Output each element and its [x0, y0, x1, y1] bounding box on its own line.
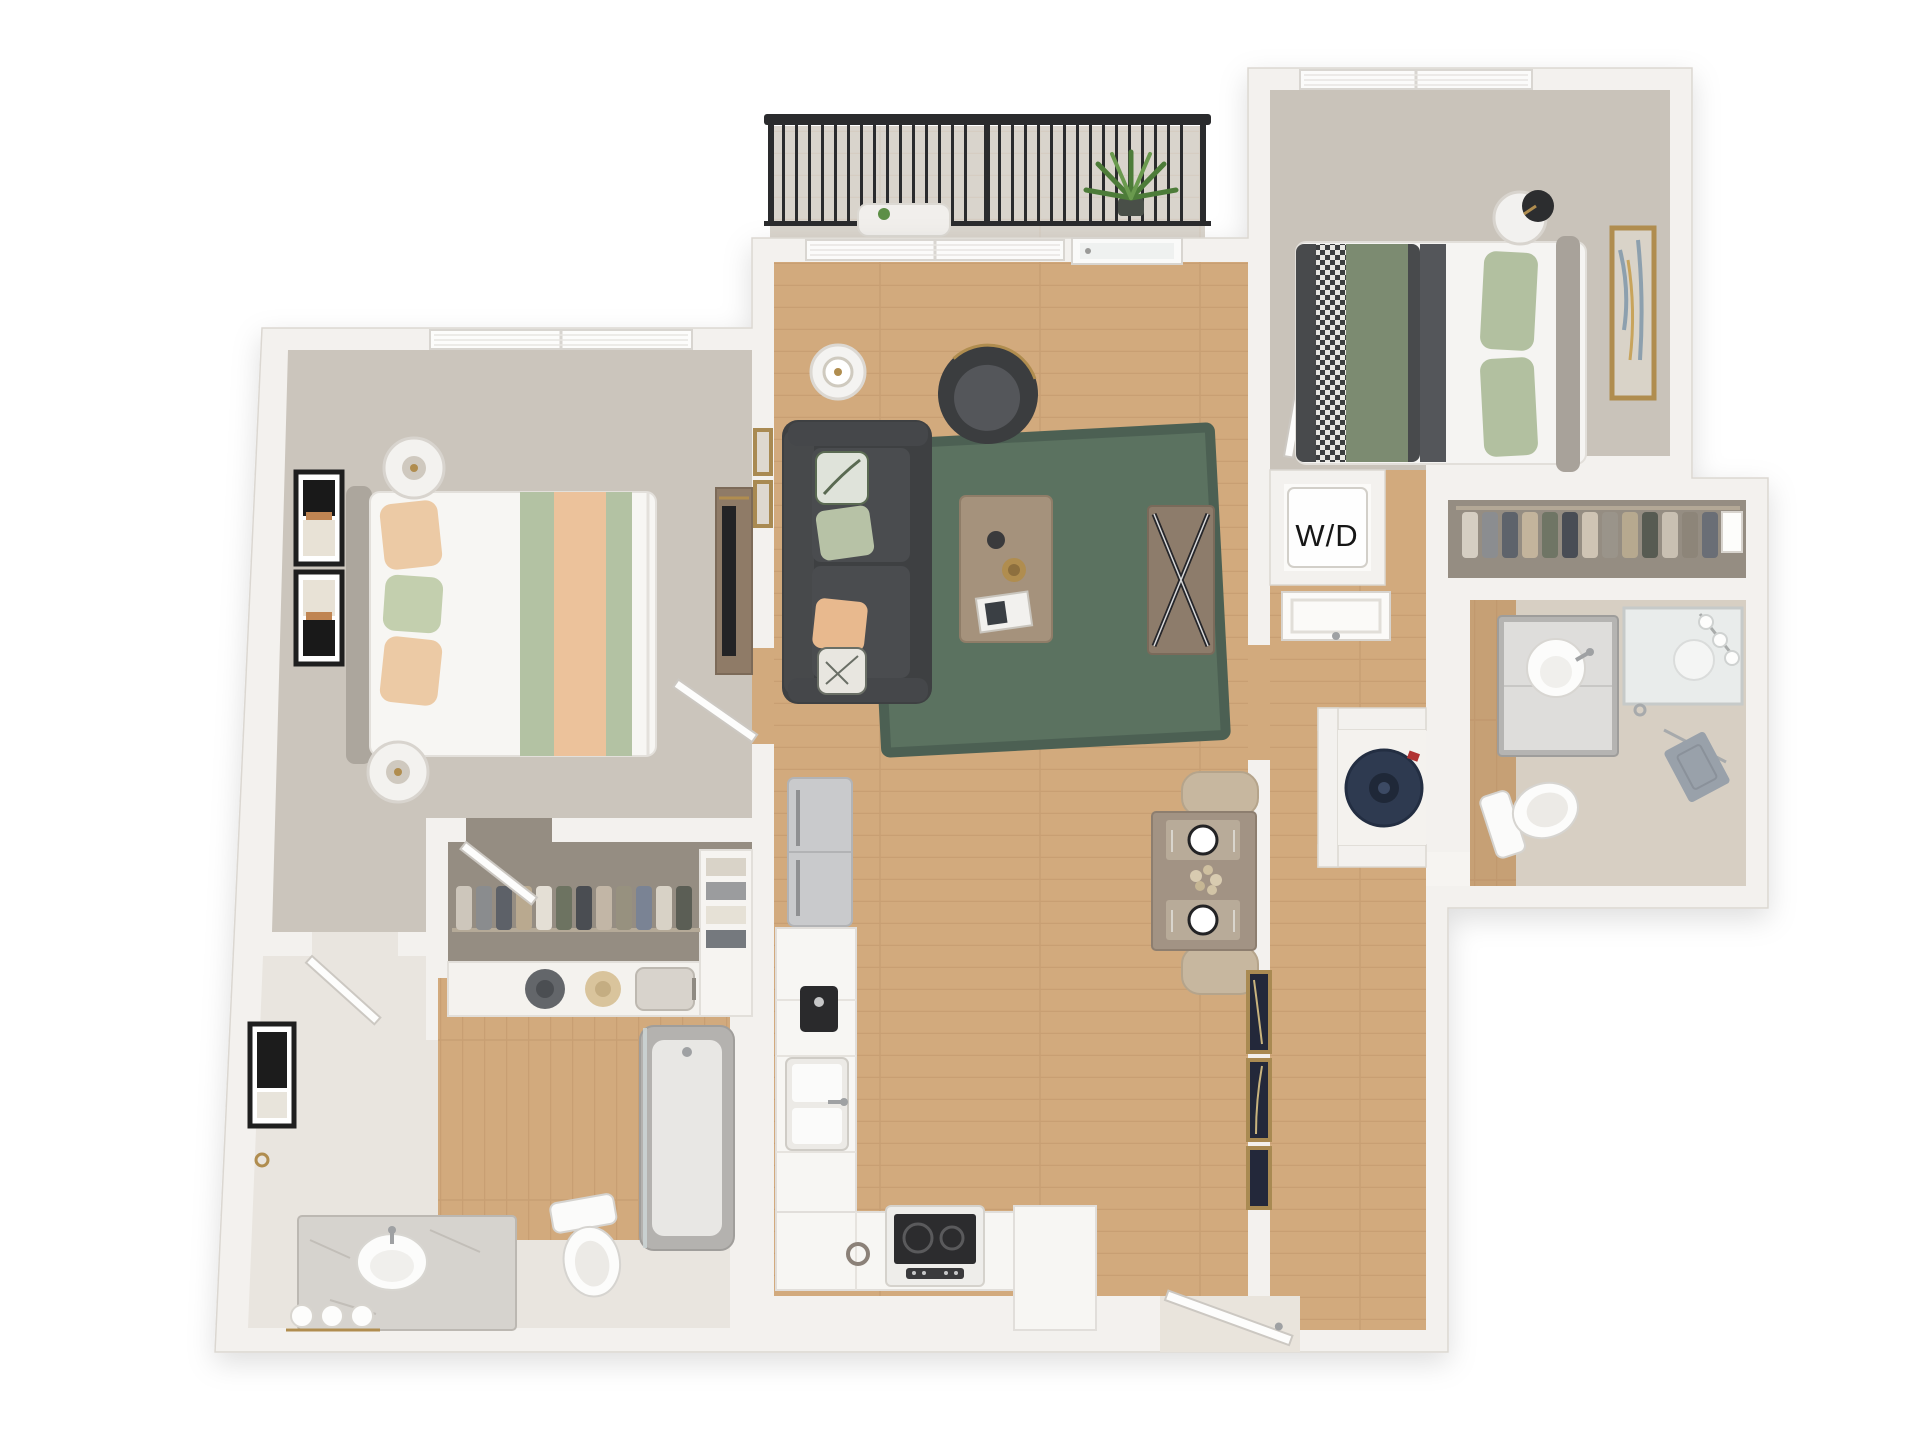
headboard: [1556, 236, 1580, 472]
balcony: [764, 114, 1211, 238]
green-pillow-1: [1479, 251, 1538, 352]
balcony-door: [1072, 238, 1182, 264]
green-blanket: [1346, 244, 1408, 462]
hall-nook-floor: [1385, 470, 1426, 585]
bedroom-2-window: [1300, 70, 1532, 89]
utility-closet: [1318, 708, 1426, 867]
bedroom-1-door-opening: [752, 648, 774, 744]
mirror: [1624, 608, 1742, 704]
storage-box: [1722, 512, 1742, 552]
counter-left: [776, 928, 856, 1216]
laundry-paneled-door: [1282, 592, 1390, 640]
washer-dryer-label: W/D: [1295, 518, 1358, 553]
runner-sage-stripe: [520, 492, 554, 756]
runner-peach-stripe: [554, 492, 606, 756]
refrigerator: [788, 778, 852, 926]
hall-wood-texture: [1270, 585, 1426, 1330]
coffee-maker-icon: [800, 986, 838, 1032]
plate-2: [1189, 906, 1217, 934]
sage-pillow: [815, 504, 875, 561]
tv-icon: [722, 506, 736, 656]
media-console: [1148, 506, 1214, 654]
bedroom-2-art: [1612, 228, 1654, 398]
runner-sage-stripe-2: [606, 492, 632, 756]
closet-shelf: [448, 962, 700, 1016]
peach-pillow: [812, 597, 869, 652]
dining-chair-1: [1182, 772, 1258, 816]
suitcase: [636, 968, 694, 1010]
plate-1: [1189, 826, 1217, 854]
peach-pillow: [379, 499, 444, 571]
living-room-window: [806, 240, 1064, 260]
reflected-basin: [1674, 640, 1714, 680]
water-heater-icon: [1346, 750, 1422, 826]
vanity-2: [1498, 616, 1618, 756]
headboard: [346, 486, 372, 764]
checkered-throw: [1316, 244, 1346, 462]
coffee-table: [960, 496, 1052, 642]
floor-plan-rendering: W/D: [0, 0, 1920, 1440]
sofa: [782, 420, 932, 704]
peninsula-cabinet: [1014, 1206, 1096, 1330]
dresser-with-tv: [716, 488, 752, 674]
gallery-frames: [1248, 972, 1270, 1208]
black-table-lamp: [1522, 190, 1554, 222]
tub-faucet: [682, 1047, 692, 1057]
bathtub-shower: [640, 1026, 734, 1250]
bed-2: [1296, 236, 1586, 472]
vase: [987, 531, 1005, 549]
side-table-with-lamp: [811, 345, 865, 399]
range-stove: [886, 1206, 984, 1286]
nightstand-lamp-1: [384, 438, 444, 498]
duvet-fold: [1420, 244, 1446, 462]
dining-table: [1152, 812, 1256, 950]
hall-opening: [1248, 645, 1270, 760]
bathroom-1-door-opening: [312, 932, 398, 956]
nightstand-lamp-2: [368, 742, 428, 802]
leaf-pattern-pillow: [816, 452, 868, 504]
green-pillow-2: [1479, 357, 1538, 458]
bed-1: [346, 486, 656, 764]
bedroom-1-window: [430, 330, 692, 349]
rolled-towels: [286, 1305, 380, 1330]
kitchen-sink: [786, 1058, 848, 1150]
sage-pillow: [382, 574, 444, 634]
laundry-closet: W/D: [1270, 470, 1390, 640]
peach-pillow-2: [379, 635, 444, 707]
entry-hall: [1248, 972, 1270, 1208]
patio-table: [858, 204, 950, 236]
bathroom-2-door-opening: [1426, 852, 1470, 886]
closet-1-door-opening: [466, 818, 552, 842]
